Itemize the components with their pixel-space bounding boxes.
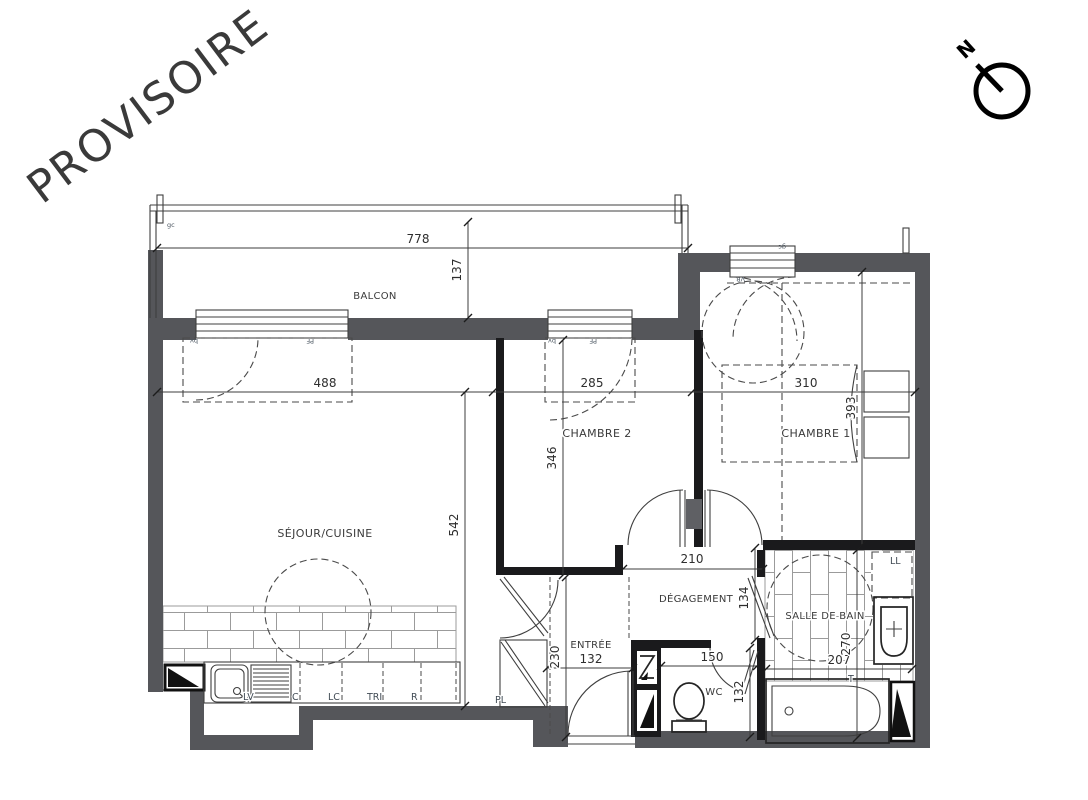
north-compass: N [952,35,1028,117]
dim-sejour-width: 488 [314,376,337,390]
bed-headboard [851,365,909,462]
room-label-chambre2: CHAMBRE 2 [562,427,631,440]
window-chambre2 [548,310,632,338]
label-c: C [292,692,299,703]
floor-plan-page: 778 137 488 285 310 542 346 393 210 134 … [0,0,1088,800]
dim-entree-width: 132 [580,652,603,666]
door-entrance [568,671,635,744]
room-label-sejour: SÉJOUR/CUISINE [277,527,372,540]
toilet [672,683,706,732]
tag-vr: VR [736,275,745,283]
window-sejour [196,310,348,338]
dim-wc-depth: 132 [732,681,746,704]
provisoire-watermark: PROVISOIRE [18,0,279,214]
room-label-sdb: SALLE DE BAIN [785,611,864,622]
dim-chambre1-width: 310 [795,376,818,390]
tag-bv-chambre2: bv [548,337,556,345]
room-label-chambre1: CHAMBRE 1 [781,427,850,440]
closet-pl [500,640,548,707]
dim-sejour-depth: 542 [447,514,461,537]
door-chambre2 [628,490,685,547]
kitchen-backsplash-tiles [163,606,456,662]
dim-sdb-depth: 270 [839,633,853,656]
dim-degagement-width: 210 [681,552,704,566]
tag-gc-balcon: gc [167,221,175,229]
dim-wc-width: 150 [701,650,724,664]
room-label-degagement: DÉGAGEMENT [659,592,734,605]
drain-icon [785,707,793,715]
door-sejour-entree [500,577,558,638]
tag-pf-sejour: PF [306,337,314,345]
floor-plan-drawing: 778 137 488 285 310 542 346 393 210 134 … [0,0,1088,800]
tag-gc-chambre1: gc [778,243,786,251]
shaft-bathroom [891,682,914,741]
room-label-wc: WC [705,687,722,698]
label-pl: PL [495,695,507,706]
dim-entree-depth: 230 [548,646,562,669]
room-label-balcon: BALCON [353,291,396,302]
dim-balcon-width: 778 [407,232,430,246]
room-label-entree: ENTRÉE [570,638,611,651]
tag-pf-chambre2: PF [589,337,597,345]
label-t: T [847,674,854,685]
shaft-kitchen [165,665,204,690]
tag-bv-sejour: bv [190,337,198,345]
label-lc: LC [328,692,340,703]
label-r: R [411,692,418,703]
turning-circle-chambre1 [702,281,804,383]
label-lv: LV [243,692,254,703]
door-chambre1 [705,490,762,547]
dim-chambre2-depth: 346 [545,447,559,470]
label-ll: LL [890,556,901,567]
dim-balcon-depth: 137 [450,259,464,282]
dim-chambre2-width: 285 [581,376,604,390]
faucet-icon [234,688,241,695]
label-tri: TRI [366,692,382,703]
bed-outline [722,365,857,462]
shaft-entree [631,645,661,737]
compass-north-label: N [952,35,981,64]
dim-degagement-depth: 134 [737,587,751,610]
dim-chambre1-depth: 393 [844,397,858,420]
